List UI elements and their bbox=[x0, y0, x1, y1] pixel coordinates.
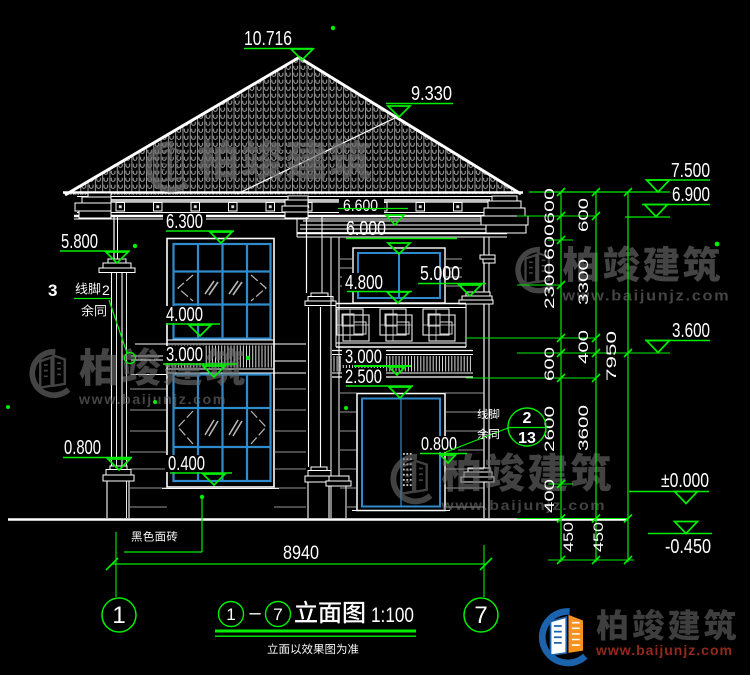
svg-text:3: 3 bbox=[48, 281, 57, 300]
svg-text:±0.000: ±0.000 bbox=[661, 470, 709, 492]
svg-text:1: 1 bbox=[226, 605, 235, 624]
svg-text:www.baijunjz.com: www.baijunjz.com bbox=[78, 391, 227, 407]
svg-text:3.000: 3.000 bbox=[166, 344, 203, 366]
svg-text:600: 600 bbox=[575, 198, 591, 232]
svg-text:10.716: 10.716 bbox=[244, 28, 292, 50]
svg-text:400: 400 bbox=[575, 330, 591, 364]
svg-text:2600: 2600 bbox=[541, 406, 557, 452]
svg-text:1: 1 bbox=[112, 602, 125, 629]
svg-text:13: 13 bbox=[518, 430, 536, 447]
svg-text:0.800: 0.800 bbox=[64, 437, 101, 459]
svg-text:www.baijunjz.com: www.baijunjz.com bbox=[440, 497, 606, 513]
svg-text:2.500: 2.500 bbox=[345, 367, 382, 388]
svg-text:www.baijunjz.com: www.baijunjz.com bbox=[595, 642, 733, 658]
svg-text:600600: 600600 bbox=[541, 188, 557, 260]
svg-text:5.800: 5.800 bbox=[61, 231, 98, 253]
svg-text:6.900: 6.900 bbox=[672, 184, 710, 206]
svg-text:450: 450 bbox=[560, 522, 576, 552]
svg-text:5.000: 5.000 bbox=[420, 263, 460, 285]
svg-text:7950: 7950 bbox=[603, 331, 619, 381]
svg-text:600: 600 bbox=[541, 347, 557, 381]
svg-text:3600: 3600 bbox=[575, 405, 591, 451]
svg-text:3300: 3300 bbox=[575, 259, 591, 305]
svg-text:1:100: 1:100 bbox=[371, 604, 414, 627]
svg-text:8940: 8940 bbox=[283, 543, 319, 564]
svg-text:450: 450 bbox=[590, 522, 606, 552]
svg-text:0.400: 0.400 bbox=[168, 453, 205, 475]
svg-text:7.500: 7.500 bbox=[671, 160, 710, 182]
svg-text:0.800: 0.800 bbox=[421, 434, 457, 454]
svg-text:7: 7 bbox=[474, 602, 487, 629]
svg-text:4.000: 4.000 bbox=[166, 304, 203, 326]
svg-text:-0.450: -0.450 bbox=[665, 536, 711, 558]
svg-text:3.600: 3.600 bbox=[672, 320, 710, 342]
svg-text:400: 400 bbox=[541, 479, 557, 513]
svg-text:6.600: 6.600 bbox=[343, 196, 378, 215]
svg-text:6.000: 6.000 bbox=[346, 218, 386, 240]
svg-text:2: 2 bbox=[523, 410, 532, 427]
svg-text:3.000: 3.000 bbox=[345, 347, 382, 368]
svg-text:–: – bbox=[249, 602, 261, 624]
svg-text:6.300: 6.300 bbox=[166, 211, 203, 233]
svg-text:4.800: 4.800 bbox=[345, 272, 383, 294]
svg-text:7: 7 bbox=[273, 605, 282, 624]
svg-text:2: 2 bbox=[102, 282, 110, 298]
svg-text:2300: 2300 bbox=[541, 263, 557, 309]
svg-text:9.330: 9.330 bbox=[411, 83, 452, 105]
